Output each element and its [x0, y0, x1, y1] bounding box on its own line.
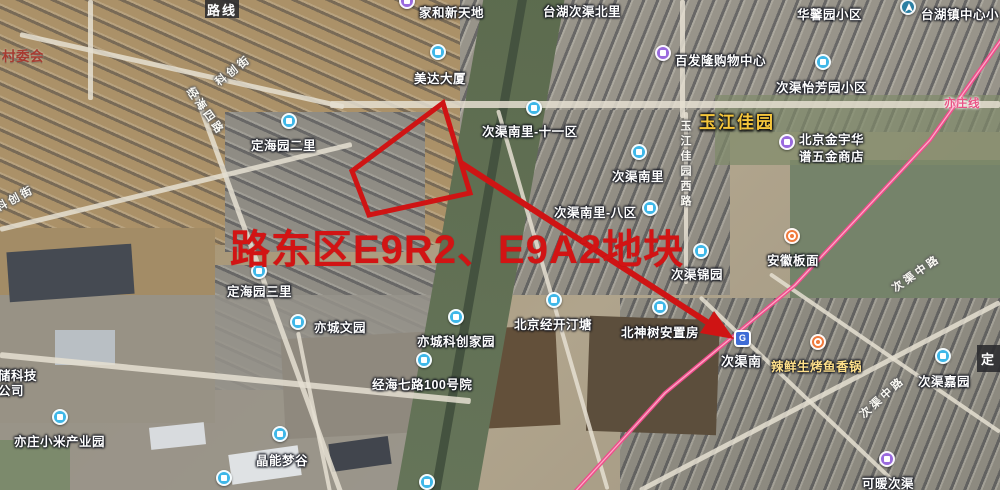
poi-label[interactable]: 可暖次渠: [862, 473, 914, 490]
residential-poi-icon[interactable]: [52, 409, 68, 425]
poi-label[interactable]: 经海七路100号院: [372, 374, 472, 393]
poi-label[interactable]: 亦城科创家园: [417, 331, 495, 350]
residential-poi-icon[interactable]: [430, 44, 446, 60]
residential-poi-icon[interactable]: [815, 54, 831, 70]
subway-line-label: 亦庄线: [944, 95, 980, 111]
road: [330, 101, 1000, 108]
restaurant-poi-icon[interactable]: [784, 228, 800, 244]
poi-label[interactable]: 次渠南里-十一区: [482, 121, 578, 140]
residential-poi-icon[interactable]: [652, 299, 668, 315]
poi-label[interactable]: 家和新天地: [419, 2, 484, 21]
poi-label[interactable]: 辣鲜生烤鱼香锅: [771, 356, 862, 375]
shopping-poi-icon[interactable]: [879, 451, 895, 467]
poi-label[interactable]: 次渠南里: [612, 166, 664, 185]
poi-label[interactable]: 晶能梦谷: [256, 450, 308, 469]
poi-label[interactable]: 亦庄小米产业园: [14, 431, 105, 450]
shopping-poi-icon[interactable]: [779, 134, 795, 150]
metro-station-label[interactable]: 次渠南: [721, 351, 762, 370]
estate-highlight-label[interactable]: 玉江佳园: [699, 108, 775, 133]
residential-poi-icon[interactable]: [693, 243, 709, 259]
residential-poi-icon[interactable]: [272, 426, 288, 442]
residential-poi-icon[interactable]: [281, 113, 297, 129]
annotation-text: 路东区E9R2、E9A2地块: [230, 217, 684, 275]
residential-poi-icon[interactable]: [416, 352, 432, 368]
road-label: 玉江佳园西路: [677, 120, 693, 210]
poi-label[interactable]: 次渠嘉园: [918, 371, 970, 390]
poi-label[interactable]: 亦城文园: [314, 317, 366, 336]
poi-label[interactable]: 台湖镇中心小: [921, 4, 999, 23]
poi-label[interactable]: 定海园三里: [227, 281, 292, 300]
route-button-label: 路线: [207, 0, 237, 19]
poi-label[interactable]: 百发隆购物中心: [675, 50, 766, 69]
residential-poi-icon[interactable]: [935, 348, 951, 364]
poi-label[interactable]: 美达大厦: [414, 68, 466, 87]
poi-label[interactable]: 安徽板面: [767, 250, 819, 269]
poi-label[interactable]: 定海园二里: [251, 135, 316, 154]
satellite-map[interactable]: 科创街 经海四路 科创街 玉江佳园西路 次渠中路 次渠中路 G 家和新天地 台湖…: [0, 0, 1000, 490]
poi-label[interactable]: 华馨园小区: [797, 4, 862, 23]
residential-poi-icon[interactable]: [526, 100, 542, 116]
metro-station-icon[interactable]: G: [734, 330, 751, 347]
residential-poi-icon[interactable]: [448, 309, 464, 325]
residential-poi-icon[interactable]: [546, 292, 562, 308]
shopping-poi-icon[interactable]: [655, 45, 671, 61]
poi-label[interactable]: 谱五金商店: [799, 146, 864, 165]
residential-poi-icon[interactable]: [631, 144, 647, 160]
route-button[interactable]: 路线: [205, 0, 239, 18]
residential-poi-icon[interactable]: [642, 200, 658, 216]
restaurant-poi-icon[interactable]: [810, 334, 826, 350]
partial-label-right-edge: 定: [977, 345, 1000, 372]
partial-company-label: 公司: [0, 380, 24, 399]
poi-label[interactable]: 台湖次渠北里: [543, 1, 621, 20]
residential-poi-icon[interactable]: [216, 470, 232, 486]
residential-poi-icon[interactable]: [290, 314, 306, 330]
poi-label[interactable]: 次渠怡芳园小区: [776, 77, 867, 96]
poi-label[interactable]: 北京经开汀塘: [514, 314, 592, 333]
warehouse-roof: [6, 244, 134, 303]
road: [88, 0, 93, 100]
village-committee-label: 村委会: [2, 45, 44, 65]
poi-label[interactable]: 北神树安置房: [621, 322, 699, 341]
partial-label-text: 定: [981, 349, 996, 368]
residential-poi-icon[interactable]: [419, 474, 435, 490]
